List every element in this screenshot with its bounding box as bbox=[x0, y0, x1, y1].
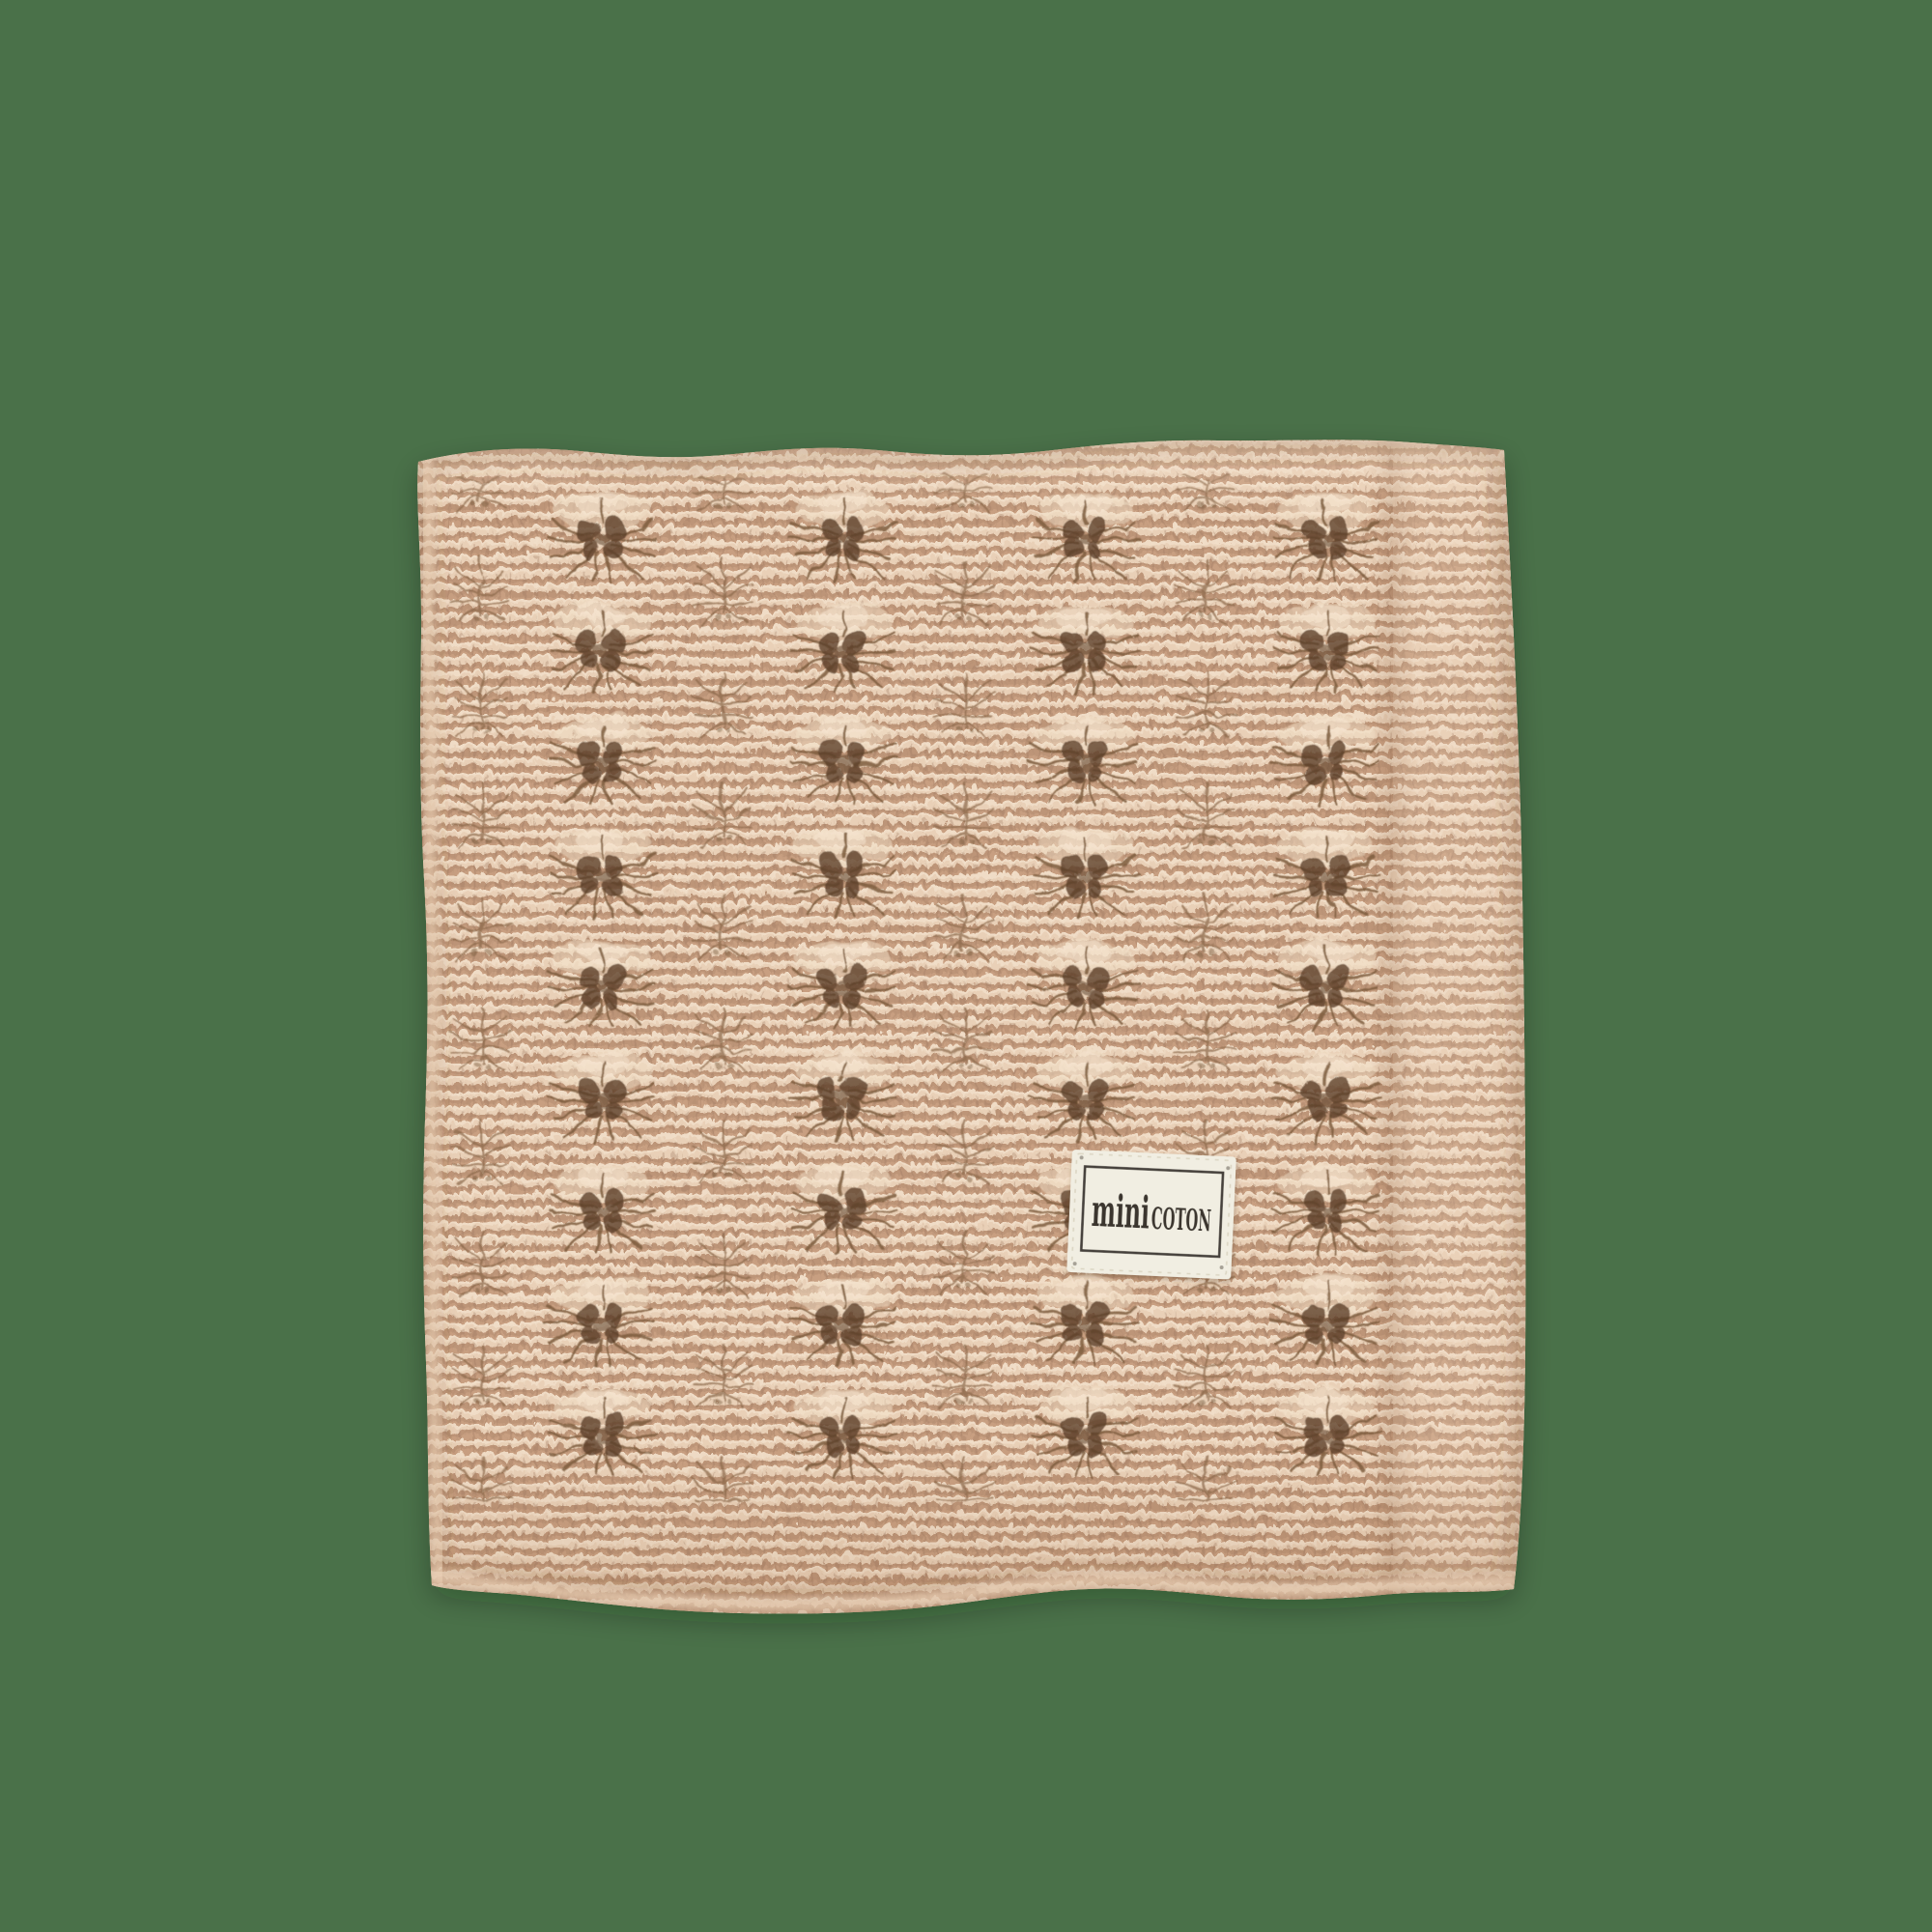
lace-pattern bbox=[444, 473, 1396, 1497]
label-text-mini: mini bbox=[1091, 1184, 1151, 1239]
label-text-coton: COTON bbox=[1151, 1202, 1212, 1239]
brand-label: mini COTON bbox=[1066, 1150, 1236, 1280]
product-photo: mini COTON bbox=[0, 0, 1932, 1932]
